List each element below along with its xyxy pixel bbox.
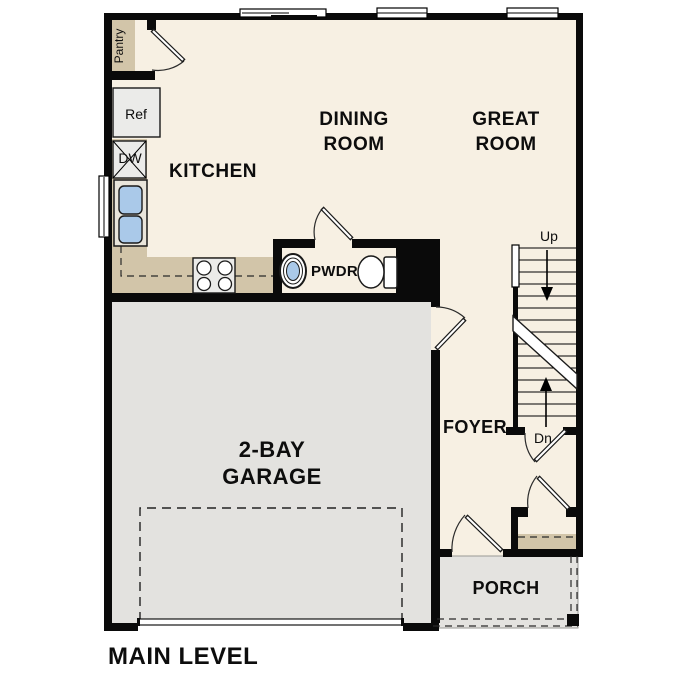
window-kitchen-sink: [99, 176, 109, 237]
pantry-bottom-wall: [112, 71, 155, 80]
sink-basin-top: [119, 186, 142, 214]
burner: [197, 261, 211, 275]
window-top-middle: [377, 8, 427, 18]
exterior-wall-right: [576, 13, 583, 557]
garage-bottom-wall-left: [104, 623, 138, 631]
pedestal-sink: [280, 254, 306, 288]
floor-plan-page: Ref DW: [0, 0, 687, 687]
great-room-label-line2: ROOM: [475, 134, 536, 155]
powder-room-label: PWDR: [311, 263, 358, 280]
stairs-up-label: Up: [540, 228, 558, 244]
garage-floor: [112, 302, 431, 623]
kitchen-sink: [114, 180, 147, 246]
burner: [219, 278, 232, 291]
burner: [198, 278, 211, 291]
stair-left-wall: [513, 287, 518, 427]
refrigerator: Ref: [113, 88, 160, 137]
kitchen-label: KITCHEN: [169, 161, 257, 182]
window-slider-top: [240, 9, 326, 18]
toilet: [358, 256, 397, 288]
dishwasher: DW: [113, 141, 146, 178]
stairs-down-label: Dn: [534, 430, 552, 446]
garage-top-wall: [104, 293, 440, 302]
exterior-wall-left: [104, 13, 112, 631]
pantry-label: Pantry: [112, 29, 126, 64]
refrigerator-label: Ref: [125, 106, 147, 122]
garage-door: [138, 619, 403, 625]
pantry-door-jamb: [147, 20, 156, 30]
sink-basin-bottom: [119, 216, 142, 243]
closet-shelf: [518, 534, 578, 549]
great-room-label-line1: GREAT: [472, 109, 540, 130]
garage-door-end-right: [401, 618, 404, 626]
floor-plan: Ref DW: [0, 0, 687, 687]
powder-top-wall-right: [352, 239, 398, 248]
front-wall-right-of-door: [503, 549, 583, 557]
burner: [218, 261, 232, 275]
porch-post: [567, 614, 579, 626]
front-wall-left-of-door: [431, 549, 452, 557]
stair-railing: [512, 245, 519, 287]
closet-wall-left: [511, 507, 518, 552]
powder-top-wall-left: [273, 239, 315, 248]
dining-room-label-line1: DINING: [319, 109, 389, 130]
garage-door-end-left: [137, 618, 140, 626]
dishwasher-label: DW: [118, 150, 142, 166]
stair-bottom-wall-left: [506, 427, 525, 435]
stove: [193, 258, 235, 293]
garage-label-line2: GARAGE: [222, 464, 322, 489]
garage-label-line1: 2-BAY: [239, 437, 306, 462]
window-top-right: [507, 8, 558, 18]
garage-right-wall-lower: [431, 350, 440, 623]
garage-bottom-wall-right: [403, 623, 439, 631]
plan-title: MAIN LEVEL: [108, 643, 258, 670]
dining-room-label-line2: ROOM: [323, 134, 384, 155]
porch-label: PORCH: [472, 578, 539, 598]
foyer-label: FOYER: [443, 417, 507, 437]
powder-chase-block: [396, 239, 440, 302]
